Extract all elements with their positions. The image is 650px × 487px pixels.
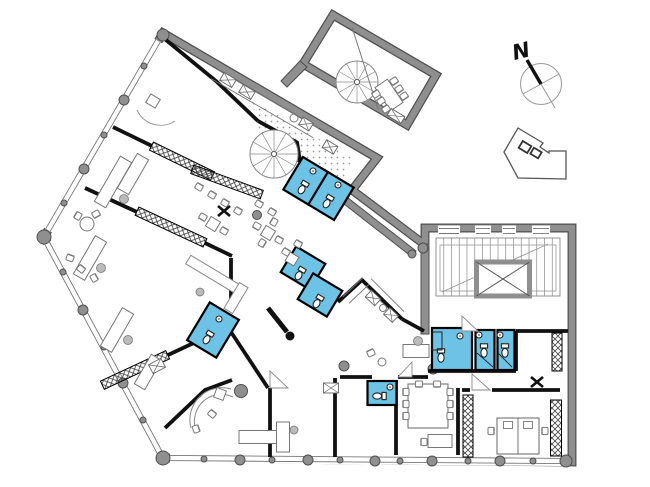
north-arrow xyxy=(521,60,562,108)
key-plan xyxy=(504,128,566,179)
plan-render-root xyxy=(37,15,572,467)
floor-plan: N xyxy=(0,0,650,487)
floor-plan-canvas: N xyxy=(0,0,650,487)
north-label: N xyxy=(510,37,533,65)
